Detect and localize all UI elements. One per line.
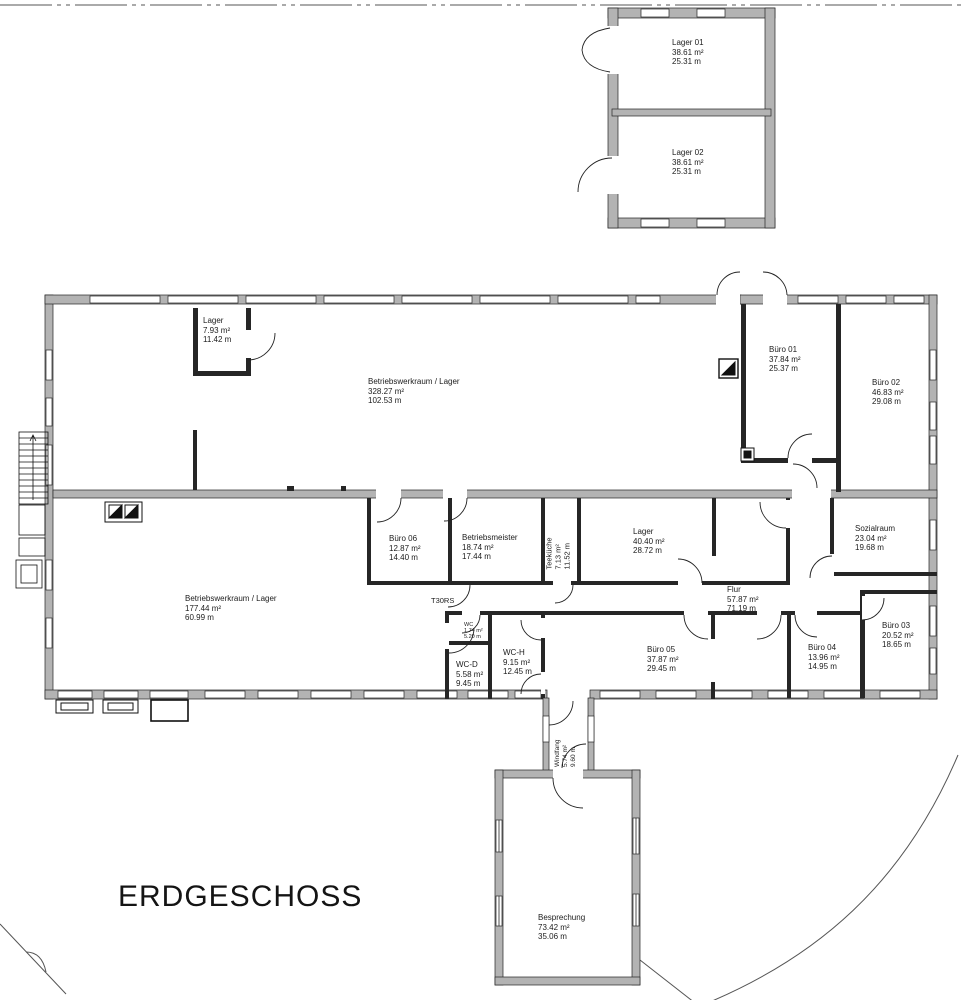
room-label-wc-d: WC-D 5.58 m² 9.45 m xyxy=(456,660,483,689)
room-label-windfang: Windfang 5.74 m² 9.60 m xyxy=(554,705,578,767)
room-label-buero-06: Büro 06 12.87 m² 14.40 m xyxy=(389,534,421,563)
storage-door-swing-icons xyxy=(578,28,612,192)
plan-drawing xyxy=(0,0,962,1000)
exterior-stairs xyxy=(16,432,48,588)
room-label-lager-mitte: Lager 40.40 m² 28.72 m xyxy=(633,527,665,556)
room-label-sozialraum: Sozialraum 23.04 m² 19.68 m xyxy=(855,524,895,553)
room-label-besprechung: Besprechung 73.42 m² 35.06 m xyxy=(538,913,585,942)
room-label-betriebsmeister: Betriebsmeister 18.74 m² 17.44 m xyxy=(462,533,518,562)
room-label-buero-01: Büro 01 37.84 m² 25.37 m xyxy=(769,345,801,374)
room-label-wc-h: WC-H 9.15 m² 12.45 m xyxy=(503,648,532,677)
fire-door-label: T30RS xyxy=(431,596,454,605)
room-label-buero-04: Büro 04 13.96 m² 14.95 m xyxy=(808,643,840,672)
room-label-werkraum-unten: Betriebswerkraum / Lager 177.44 m² 60.99… xyxy=(185,594,277,623)
room-label-werkraum-oben: Betriebswerkraum / Lager 328.27 m² 102.5… xyxy=(368,377,460,406)
site-boundary-lines xyxy=(0,5,962,1000)
floor-plan: Lager 01 38.61 m² 25.31 m Lager 02 38.61… xyxy=(0,0,962,1000)
room-label-flur: Flur 57.87 m² 71.19 m xyxy=(727,585,759,614)
room-label-wc: WC 1.74 m² 5.20 m xyxy=(464,622,483,641)
room-label-teekueche: Teeküche 7.13 m² 11.52 m xyxy=(545,508,572,570)
loading-ramps xyxy=(56,700,188,721)
room-label-lager-klein: Lager 7.93 m² 11.42 m xyxy=(203,316,231,345)
room-label-buero-02: Büro 02 46.83 m² 29.08 m xyxy=(872,378,904,407)
interior-partitions xyxy=(193,304,937,699)
room-label-buero-05: Büro 05 37.87 m² 29.45 m xyxy=(647,645,679,674)
floor-title: ERDGESCHOSS xyxy=(118,880,362,914)
room-label-lager-01: Lager 01 38.61 m² 25.31 m xyxy=(672,38,704,67)
room-label-buero-03: Büro 03 20.52 m² 18.65 m xyxy=(882,621,914,650)
room-label-lager-02: Lager 02 38.61 m² 25.31 m xyxy=(672,148,704,177)
